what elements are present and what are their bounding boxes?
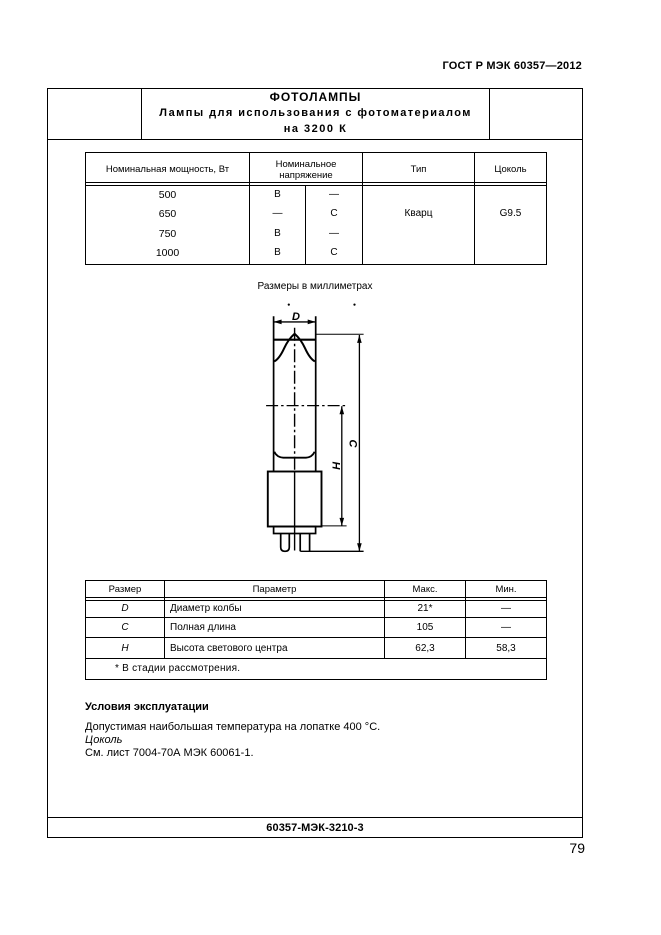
svg-text:C: C <box>347 440 359 449</box>
svg-text:D: D <box>292 311 300 323</box>
svg-text:H: H <box>330 462 342 471</box>
